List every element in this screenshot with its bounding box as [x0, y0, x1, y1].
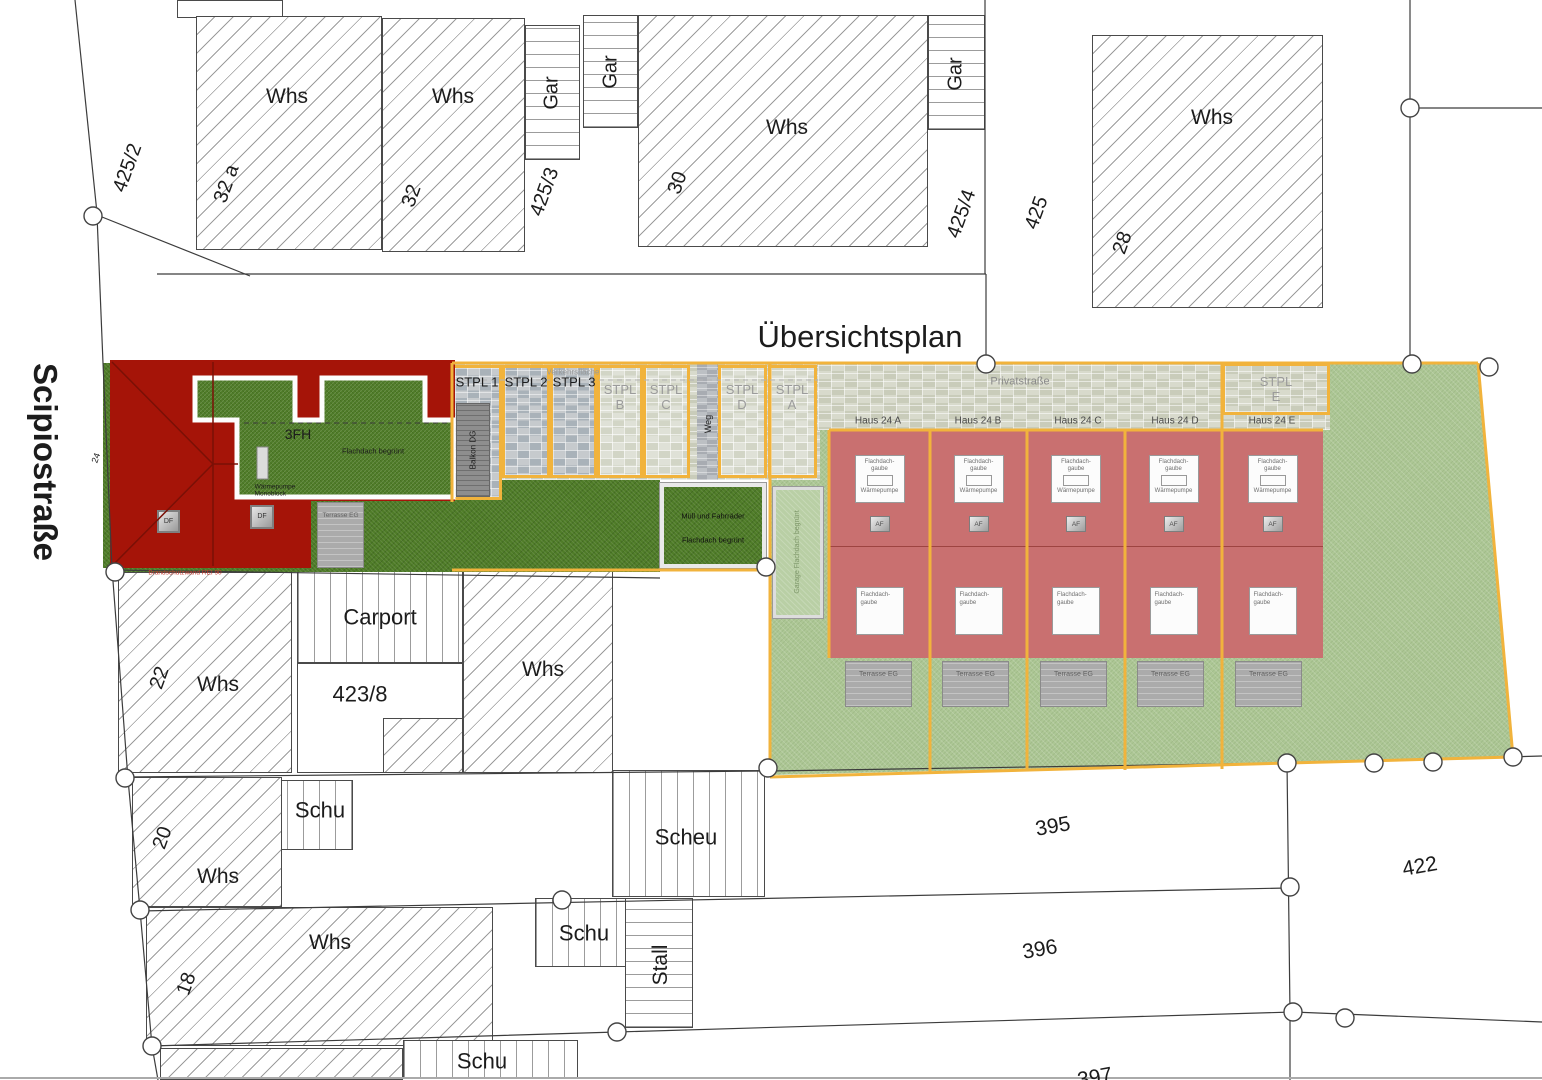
terrasse-house-c: Terrasse EG — [1040, 661, 1107, 707]
dormer-label-1: Flachdach- — [1150, 459, 1198, 466]
stpl-b-label: STPLB — [604, 383, 637, 413]
parcel-422: 422 — [1401, 852, 1440, 882]
dormer-heatpump-box: Flachdach- gaube Wärmepumpe — [855, 455, 905, 503]
af-box: AF — [1263, 516, 1283, 532]
heatpump-outline — [1260, 475, 1286, 486]
stpl-letter: E — [1260, 390, 1293, 405]
roof-window-df-1: DF — [157, 510, 180, 533]
balkon-dg-label: Balkon DG — [468, 431, 477, 470]
stpl-word: STPL — [604, 383, 637, 398]
dormer-label-1: Flachdach- — [861, 592, 899, 600]
heatpump-label: Wärmepumpe — [1150, 488, 1198, 495]
stall-label: Stall — [649, 945, 673, 986]
heatpump-label: Wärmepumpe — [955, 488, 1003, 495]
haus-24e-label: Haus 24 E — [1249, 415, 1296, 427]
terrasse-eg-main-label: Terrasse EG — [322, 512, 358, 519]
dormer-label-1: Flachdach- — [856, 459, 904, 466]
heatpump-line-1: Wärmepumpe — [255, 484, 296, 491]
site-plan: DF DF Terrasse EG Flachdach- gaube Wärme… — [0, 0, 1542, 1080]
dormer-heatpump-box: Flachdach- gaube Wärmepumpe — [1051, 455, 1101, 503]
haus-24c-label: Haus 24 C — [1054, 415, 1101, 427]
terrasse-label: Terrasse EG — [859, 671, 898, 678]
privatstrasse-label: Privatstraße — [990, 376, 1049, 389]
whs-label-right: Whs — [522, 658, 564, 682]
dormer-label-1: Flachdach- — [955, 459, 1003, 466]
street-name-label: Scipiostraße — [26, 363, 64, 561]
dormer-label-1: Flachdach- — [1155, 592, 1193, 600]
gar-label-1: Gar — [541, 76, 564, 109]
garage-strip-label: Garage Flachdach begrünt — [794, 510, 802, 593]
house-block-b: Flachdach- gaube Wärmepumpe AF Flachdach… — [930, 430, 1027, 658]
main-building-red-lower — [110, 500, 311, 568]
gar-label-2: Gar — [600, 55, 623, 88]
house-block-e: Flachdach- gaube Wärmepumpe AF Flachdach… — [1222, 430, 1323, 658]
whs-label-32a: Whs — [266, 85, 308, 109]
scheu-label: Scheu — [655, 824, 717, 849]
whs-label-28: Whs — [1191, 106, 1233, 130]
terrasse-house-a: Terrasse EG — [845, 661, 912, 707]
terrasse-label: Terrasse EG — [1249, 671, 1288, 678]
whs-label-18: Whs — [309, 931, 351, 955]
terrasse-label: Terrasse EG — [956, 671, 995, 678]
dormer-heatpump-box: Flachdach- gaube Wärmepumpe — [954, 455, 1004, 503]
parcel-425-3: 425/3 — [526, 165, 565, 220]
whs-label-20: Whs — [197, 865, 239, 889]
stpl-c-label: STPLC — [650, 383, 683, 413]
stpl-letter: C — [650, 398, 683, 413]
dormer-heatpump-box: Flachdach- gaube Wärmepumpe — [1149, 455, 1199, 503]
stpl-d-label: STPLD — [726, 383, 759, 413]
building-whs-notch — [383, 718, 463, 773]
heatpump-outline — [1161, 475, 1187, 486]
parcel-396: 396 — [1021, 935, 1060, 965]
carport-label: Carport — [343, 604, 416, 629]
dormer-label-2: gaube — [1155, 600, 1193, 608]
dormer-label-1: Flachdach- — [1052, 459, 1100, 466]
floor-divider — [1027, 546, 1125, 547]
gar-label-3: Gar — [945, 57, 968, 90]
dormer-box-2: Flachdach- gaube — [955, 587, 1003, 635]
af-box: AF — [1066, 516, 1086, 532]
floor-divider — [1125, 546, 1222, 547]
dormer-label-2: gaube — [960, 600, 998, 608]
heatpump-outline — [1063, 475, 1089, 486]
heatpump-outline — [966, 475, 992, 486]
heatpump-line-2: Monoblock — [255, 491, 296, 498]
terrasse-house-d: Terrasse EG — [1137, 661, 1204, 707]
dormer-label-1: Flachdach- — [1254, 592, 1292, 600]
af-box: AF — [969, 516, 989, 532]
main-building-3fh-label: 3FH — [285, 426, 311, 442]
dormer-box-2: Flachdach- gaube — [1150, 587, 1198, 635]
dormer-label-2: gaube — [1254, 600, 1292, 608]
heatpump-label: Wärmepumpe — [1052, 488, 1100, 495]
stpl-e-label: STPLE — [1260, 375, 1293, 405]
af-box: AF — [1164, 516, 1184, 532]
dormer-box-2: Flachdach- gaube — [1249, 587, 1297, 635]
page-title: Übersichtsplan — [757, 319, 962, 355]
dormer-label-1: Flachdach- — [1249, 459, 1297, 466]
stpl-word: STPL — [726, 383, 759, 398]
dormer-label-1: Flachdach- — [960, 592, 998, 600]
waste-label-1: Müll und Fahrräder — [681, 513, 744, 522]
house-block-d: Flachdach- gaube Wärmepumpe AF Flachdach… — [1125, 430, 1222, 658]
parcel-425-4: 425/4 — [943, 187, 982, 242]
stpl-word: STPL — [1260, 375, 1293, 390]
floor-divider — [1222, 546, 1323, 547]
dormer-label-2: gaube — [1249, 466, 1297, 473]
housenum-24: 24 — [89, 452, 102, 465]
weg-label: Weg — [703, 415, 713, 433]
roof-window-df-2: DF — [250, 505, 274, 529]
house-block-a: Flachdach- gaube Wärmepumpe AF Flachdach… — [829, 430, 930, 658]
dormer-box-2: Flachdach- gaube — [1052, 587, 1100, 635]
dormer-label-2: gaube — [1150, 466, 1198, 473]
terrasse-label: Terrasse EG — [1054, 671, 1093, 678]
building-whs-32a — [196, 16, 382, 250]
stpl-a-label: STPLA — [776, 383, 809, 413]
terrasse-house-e: Terrasse EG — [1235, 661, 1302, 707]
waste-bike-shed — [660, 483, 766, 568]
parcel-425-2: 425/2 — [109, 141, 148, 196]
terrasse-eg-main: Terrasse EG — [317, 502, 364, 568]
haus-24d-label: Haus 24 D — [1151, 415, 1198, 427]
haus-24b-label: Haus 24 B — [955, 415, 1002, 427]
parcel-423-8: 423/8 — [332, 681, 387, 706]
schu-label-1: Schu — [295, 797, 345, 822]
whs-label-22: Whs — [197, 673, 239, 697]
house-block-c: Flachdach- gaube Wärmepumpe AF Flachdach… — [1027, 430, 1125, 658]
dormer-label-2: gaube — [955, 466, 1003, 473]
parcel-425: 425 — [1020, 193, 1053, 232]
waste-label-2: Flachdach begrünt — [682, 537, 744, 546]
stpl-word: STPL — [776, 383, 809, 398]
stpl-letter: D — [726, 398, 759, 413]
stpl-letter: B — [604, 398, 637, 413]
dormer-label-2: gaube — [1057, 600, 1095, 608]
terrasse-house-b: Terrasse EG — [942, 661, 1009, 707]
dormer-label-2: gaube — [856, 466, 904, 473]
main-building-red-upper — [110, 360, 455, 501]
parcel-397: 397 — [1076, 1063, 1115, 1080]
heatpump-outline — [867, 475, 893, 486]
floor-divider — [930, 546, 1027, 547]
stpl-word: STPL — [650, 383, 683, 398]
building-hatch-bottom-left — [160, 1048, 403, 1080]
building-whs-32 — [382, 18, 525, 252]
heatpump-label: Wärmepumpe — [1249, 488, 1297, 495]
dormer-label-1: Flachdach- — [1057, 592, 1095, 600]
building-whs-28 — [1092, 35, 1323, 308]
af-box: AF — [870, 516, 890, 532]
dormer-box-2: Flachdach- gaube — [856, 587, 904, 635]
parcel-395: 395 — [1034, 812, 1073, 842]
heatpump-label: Wärmepumpe — [856, 488, 904, 495]
heatpump-monoblock-label: Wärmepumpe Monoblock — [255, 484, 296, 499]
schu-label-3: Schu — [457, 1048, 507, 1073]
green-roof-label: Flachdach begrünt — [342, 448, 404, 457]
dormer-label-2: gaube — [861, 600, 899, 608]
floor-divider — [829, 546, 930, 547]
dormer-heatpump-box: Flachdach- gaube Wärmepumpe — [1248, 455, 1298, 503]
firewall-label: Brandschutzwand REI 90 — [148, 569, 221, 576]
terrasse-label: Terrasse EG — [1151, 671, 1190, 678]
stpl-2-label: STPL 2 — [505, 376, 548, 391]
whs-label-30: Whs — [766, 116, 808, 140]
stpl-3-label: STPL 3 — [553, 376, 596, 391]
schu-label-2: Schu — [559, 920, 609, 945]
stpl-1-label: STPL 1 — [456, 376, 499, 391]
dormer-label-2: gaube — [1052, 466, 1100, 473]
stpl-letter: A — [776, 398, 809, 413]
haus-24a-label: Haus 24 A — [855, 415, 901, 427]
whs-label-32: Whs — [432, 85, 474, 109]
